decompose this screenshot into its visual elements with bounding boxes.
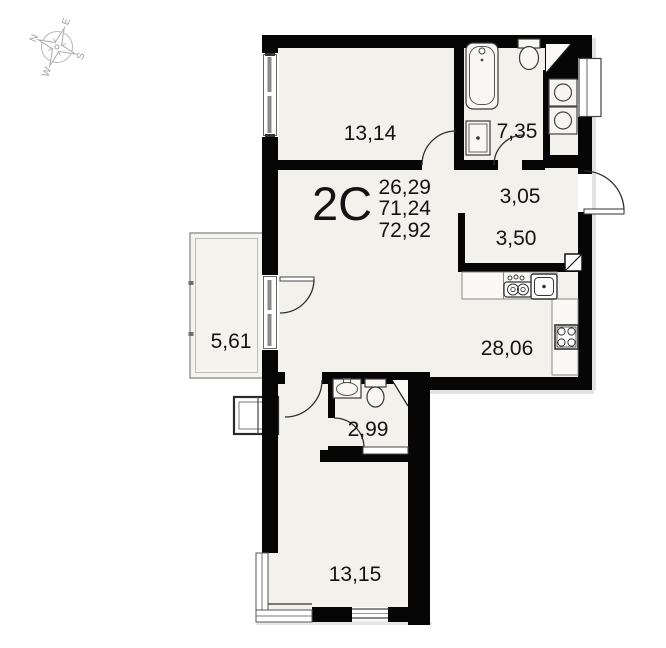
sink-wc-icon: [333, 379, 361, 399]
sink-bathroom-icon: [466, 121, 490, 155]
unit-code-label: 2С: [312, 177, 372, 230]
label-wc-small: 2,99: [348, 418, 389, 441]
compass-south-label: S: [75, 51, 88, 61]
bathtub-icon: [466, 43, 498, 109]
shaft-diagonal-icon: [565, 254, 582, 271]
compass-rose-icon: N E S W: [18, 8, 97, 88]
label-kitchen-living: 28,06: [481, 337, 534, 360]
compass-east-label: E: [60, 16, 73, 26]
floor-plan-page: N E S W: [0, 0, 666, 648]
label-balcony: 5,61: [211, 330, 252, 353]
label-hall: 3,05: [500, 185, 541, 208]
compass-north-label: N: [28, 33, 41, 44]
balcony-door-window: [261, 275, 279, 350]
entrance-door: [578, 171, 624, 214]
stove-4-burner-icon: [555, 325, 578, 349]
toilet-top-icon: [518, 39, 540, 70]
unit-area-overall: 72,92: [378, 219, 431, 242]
label-room-bottom: 13,15: [329, 563, 382, 586]
floor-plan-canvas: N E S W: [0, 0, 666, 648]
window-room-top: [261, 53, 279, 137]
toilet-wc-icon: [365, 379, 386, 407]
label-bathroom-top: 7,35: [497, 120, 538, 143]
unit-area-total: 71,24: [378, 197, 431, 220]
thin-partition: [363, 447, 408, 454]
unit-area-living: 26,29: [378, 176, 431, 199]
window-right: [578, 58, 602, 117]
compass-west-label: W: [40, 65, 54, 78]
washing-machine-icon: [549, 79, 577, 106]
dryer-icon: [549, 107, 577, 134]
label-closet: 3,50: [496, 227, 537, 250]
window-bottom: [352, 607, 388, 620]
label-room-top: 13,14: [344, 122, 397, 145]
kitchen-sink-icon: [531, 274, 557, 299]
balcony-outline: [189, 233, 264, 378]
